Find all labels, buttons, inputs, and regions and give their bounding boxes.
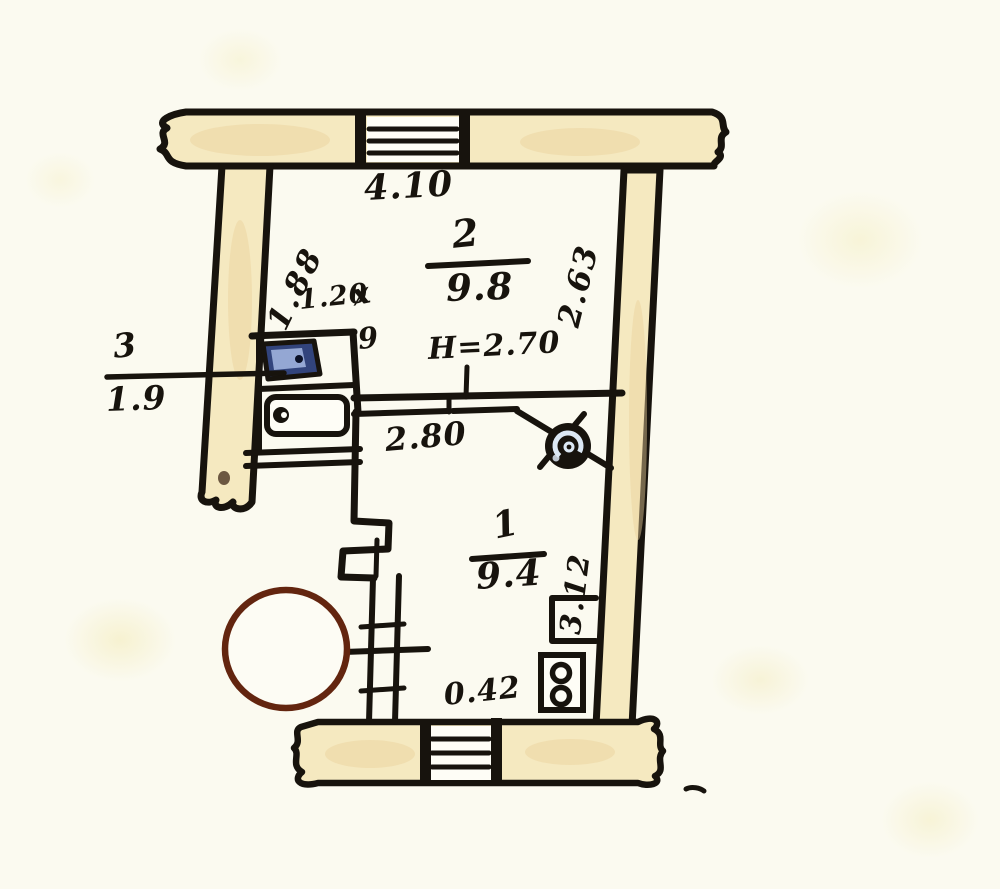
room1-left-wall bbox=[341, 412, 428, 722]
bottom-window-hatch bbox=[420, 718, 502, 782]
bottom-wall bbox=[294, 718, 663, 785]
height-tick bbox=[466, 367, 467, 397]
room1-area: 9.4 bbox=[475, 551, 543, 597]
vent-fan-icon bbox=[545, 423, 591, 469]
room3-number: 3 bbox=[111, 325, 139, 366]
top-window-hatch bbox=[355, 112, 470, 167]
kitchen-niche bbox=[246, 332, 360, 466]
room2-number: 2 bbox=[450, 209, 482, 257]
stray-mark bbox=[686, 788, 704, 791]
floor-plan: 4.10 1.88 2 9.8 2.63 1.20 х 9 3 1.9 H=2.… bbox=[0, 0, 1000, 889]
outlet-icon bbox=[541, 655, 583, 710]
stove-icon bbox=[267, 397, 347, 434]
floor-plan-drawing bbox=[0, 0, 1000, 889]
height-note: H=2.70 bbox=[427, 325, 561, 367]
room2-area: 9.8 bbox=[445, 264, 514, 310]
stamp-circle bbox=[225, 590, 347, 708]
right-wall bbox=[596, 170, 660, 726]
top-wall bbox=[160, 112, 726, 167]
room3-area: 1.9 bbox=[105, 378, 167, 419]
dim-inner-width: 2.80 bbox=[383, 414, 468, 459]
dim-top-width: 4.10 bbox=[363, 163, 454, 209]
dim-niche-depth: 9 bbox=[356, 320, 381, 356]
